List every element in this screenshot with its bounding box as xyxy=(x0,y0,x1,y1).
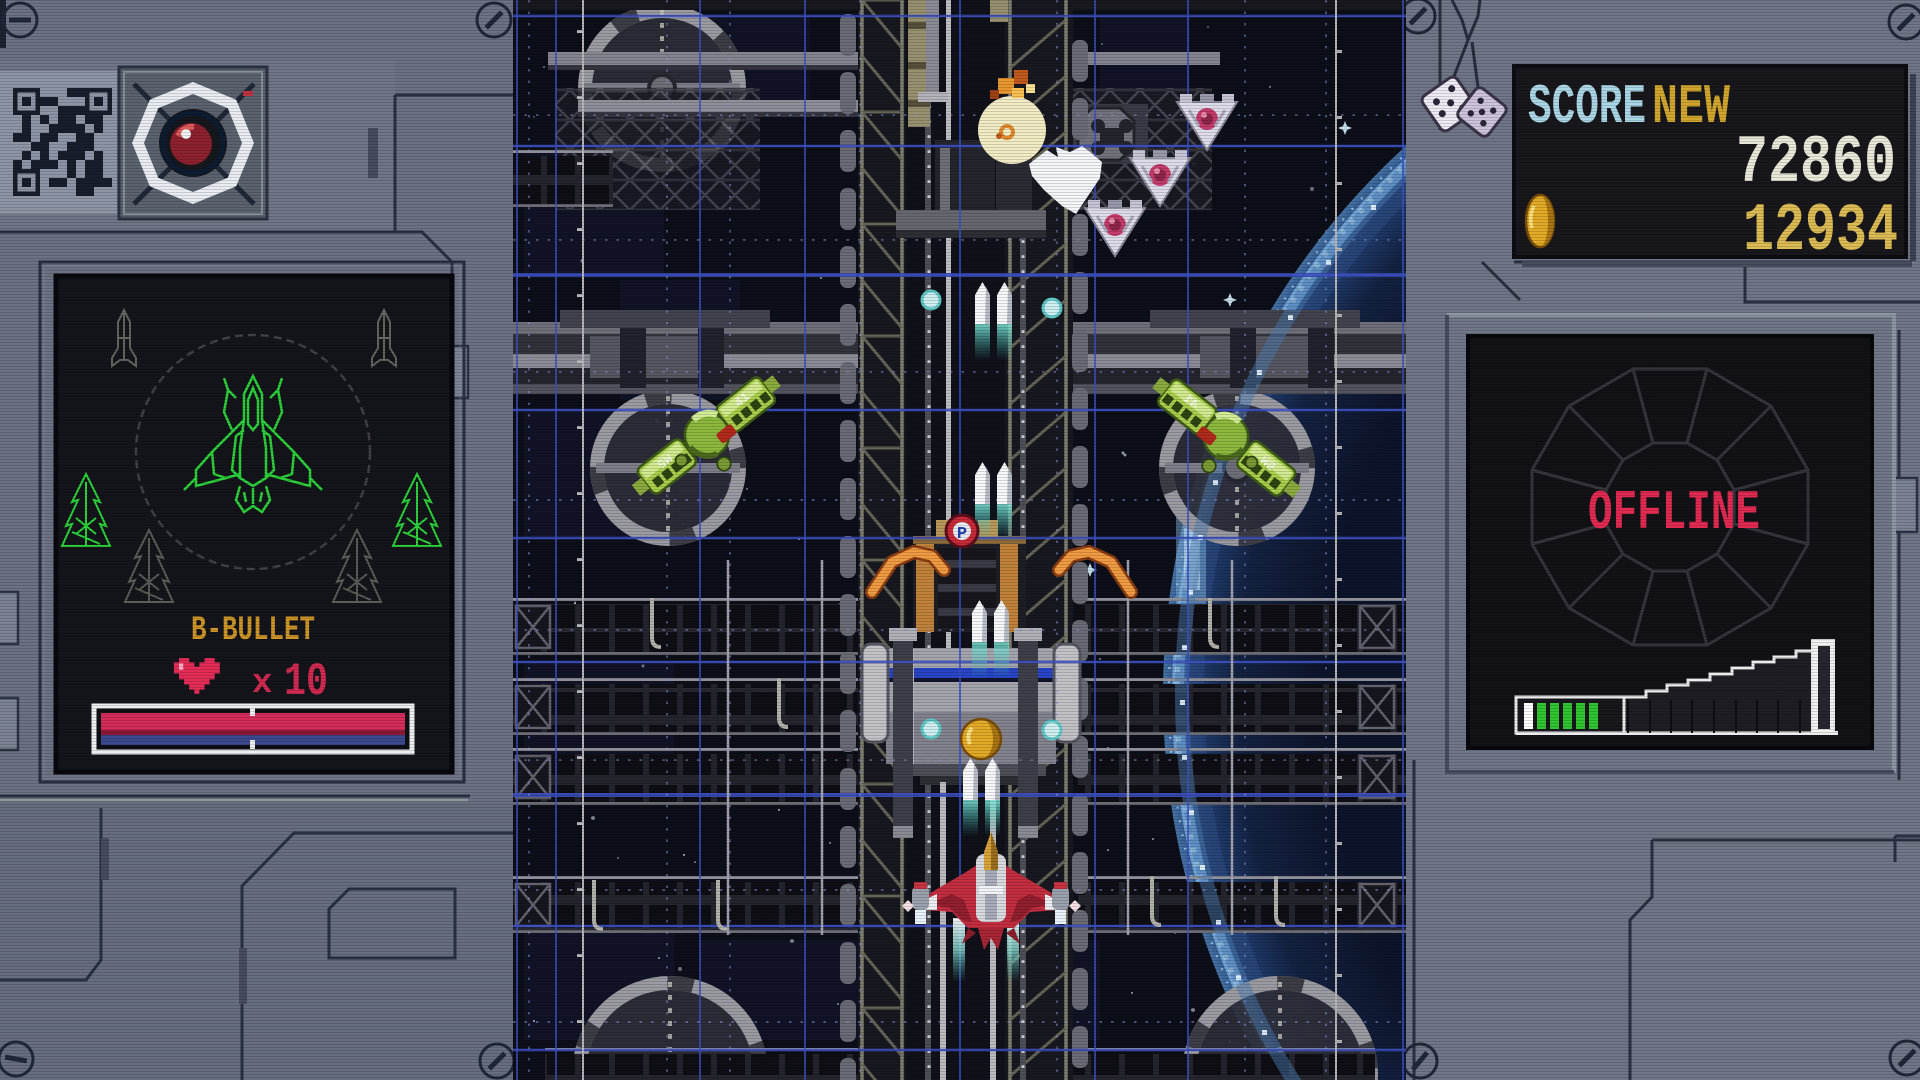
svg-text:x: x xyxy=(252,665,272,703)
svg-text:10: 10 xyxy=(284,656,328,708)
svg-text:NEW: NEW xyxy=(1652,75,1730,139)
svg-text:SCORE: SCORE xyxy=(1528,75,1646,139)
svg-text:12934: 12934 xyxy=(1743,193,1898,270)
svg-text:B-BULLET: B-BULLET xyxy=(191,612,315,650)
svg-text:OFFLINE: OFFLINE xyxy=(1588,481,1760,545)
svg-text:P: P xyxy=(957,525,967,544)
svg-text:72860: 72860 xyxy=(1736,125,1896,202)
